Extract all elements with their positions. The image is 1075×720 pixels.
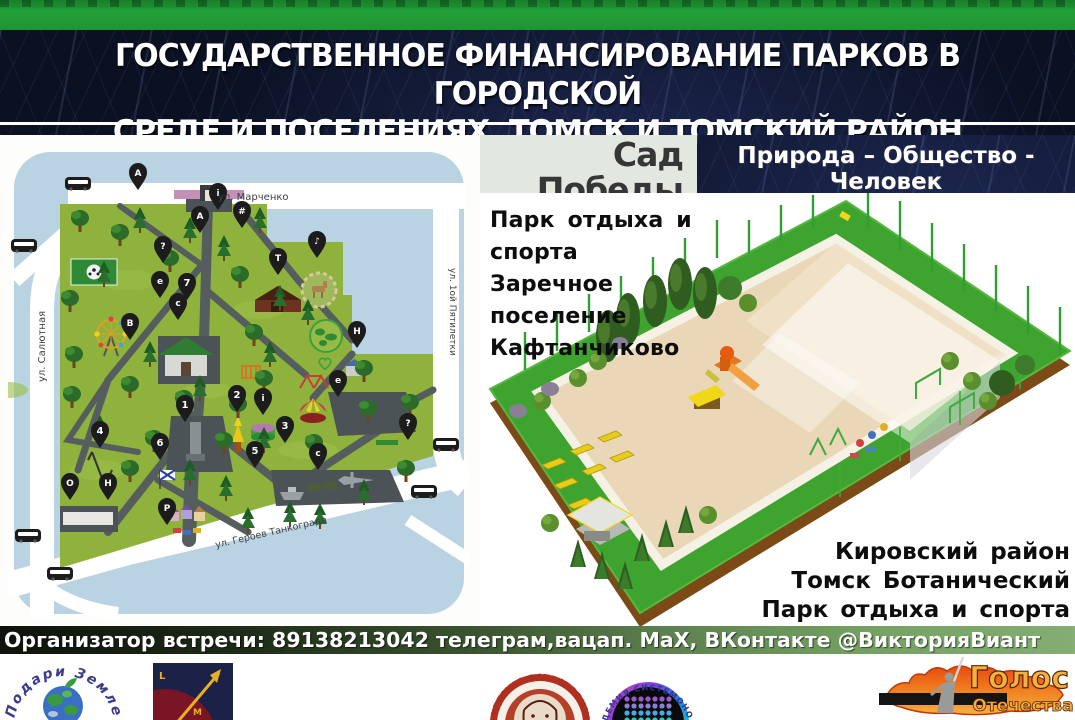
svg-text:5: 5 (252, 446, 259, 457)
golos-line1: Голос (969, 661, 1069, 696)
svg-text:3: 3 (282, 421, 289, 432)
golos-otechestva-logo: Голос Отечества (877, 655, 1075, 720)
svg-text:H: H (353, 327, 361, 337)
podari-zemle-logo: Подари Земле (5, 658, 123, 720)
title-underline (0, 122, 1075, 125)
sad-pobedy-logo: Сад Победы парк культуры и отдыха (480, 135, 697, 197)
golos-line2: Отечества (972, 696, 1073, 716)
systemonomy-logo: АКАДЕМИЯ СИСТЕМОНОМИИ (595, 659, 701, 720)
svg-text:?: ? (160, 242, 165, 252)
svg-text:4: 4 (97, 426, 104, 437)
svg-text:B: B (127, 319, 134, 329)
svg-text:2: 2 (234, 390, 241, 401)
svg-text:1: 1 (182, 400, 189, 411)
svg-text:?: ? (405, 419, 410, 429)
svg-text:c: c (175, 299, 180, 309)
svg-text:7: 7 (184, 278, 191, 289)
info-top-line1: Парк отдыха и спорта (490, 205, 760, 269)
park-info-bottom: Кировский район Томск Ботанический Парк … (690, 538, 1070, 624)
svg-text:i: i (261, 394, 264, 404)
academy-science-logo: АКАДЕМИЯ ЕСТЕСТВЕННЫХ (488, 658, 590, 720)
top-green-bar (0, 0, 1075, 30)
organizer-bar: Организатор встречи: 89138213042 телегра… (0, 626, 1075, 654)
info-top-line3: Кафтанчиково (490, 333, 760, 365)
street-label-right: ул. 1ой Пятилетки (447, 268, 457, 356)
svg-text:6: 6 (157, 438, 164, 449)
map-panel: 1 2 3 4 5 6 7 A A ? T ♪ i # e c B H (0, 135, 480, 627)
svg-text:♪: ♪ (314, 237, 320, 247)
info-bottom-line2: Томск Ботанический (690, 567, 1070, 596)
svg-text:P: P (164, 504, 171, 514)
street-label-top: ул. Марченко (218, 192, 289, 203)
title-line-1: ГОСУДАРСТВЕННОЕ ФИНАНСИРОВАНИЕ ПАРКОВ В … (16, 38, 1059, 114)
info-bottom-line3: Парк отдыха и спорта (690, 596, 1070, 625)
svg-text:A: A (135, 169, 142, 179)
bench-icon (376, 440, 398, 445)
info-bottom-line1: Кировский район (690, 538, 1070, 567)
park-map-image: 1 2 3 4 5 6 7 A A ? T ♪ i # e c B H (8, 140, 470, 622)
svg-text:L: L (159, 671, 166, 682)
slide-root: ГОСУДАРСТВЕННОЕ ФИНАНСИРОВАНИЕ ПАРКОВ В … (0, 0, 1075, 720)
logo-strip: Подари Земле L M РУССКОЕ КОСМИЧЕСКОЕ (0, 654, 1075, 720)
park-info-top: Парк отдыха и спорта Заречное поселение … (490, 205, 760, 364)
svg-text:e: e (157, 277, 163, 287)
motto-text: Природа – Общество - Человек (697, 143, 1075, 195)
svg-text:e: e (335, 376, 341, 386)
motto-band: Природа – Общество - Человек (697, 135, 1075, 193)
svg-text:O: O (66, 479, 74, 489)
svg-text:M: M (193, 708, 202, 718)
svg-text:H: H (104, 479, 112, 489)
compass-logo: L M (153, 663, 233, 720)
svg-text:c: c (315, 449, 320, 459)
info-top-line2: Заречное поселение (490, 269, 760, 333)
title-band: ГОСУДАРСТВЕННОЕ ФИНАНСИРОВАНИЕ ПАРКОВ В … (0, 30, 1075, 135)
svg-text:T: T (275, 254, 282, 264)
svg-text:#: # (238, 207, 246, 217)
svg-text:A: A (197, 212, 204, 222)
street-label-left: ул. Салютная (37, 311, 48, 382)
